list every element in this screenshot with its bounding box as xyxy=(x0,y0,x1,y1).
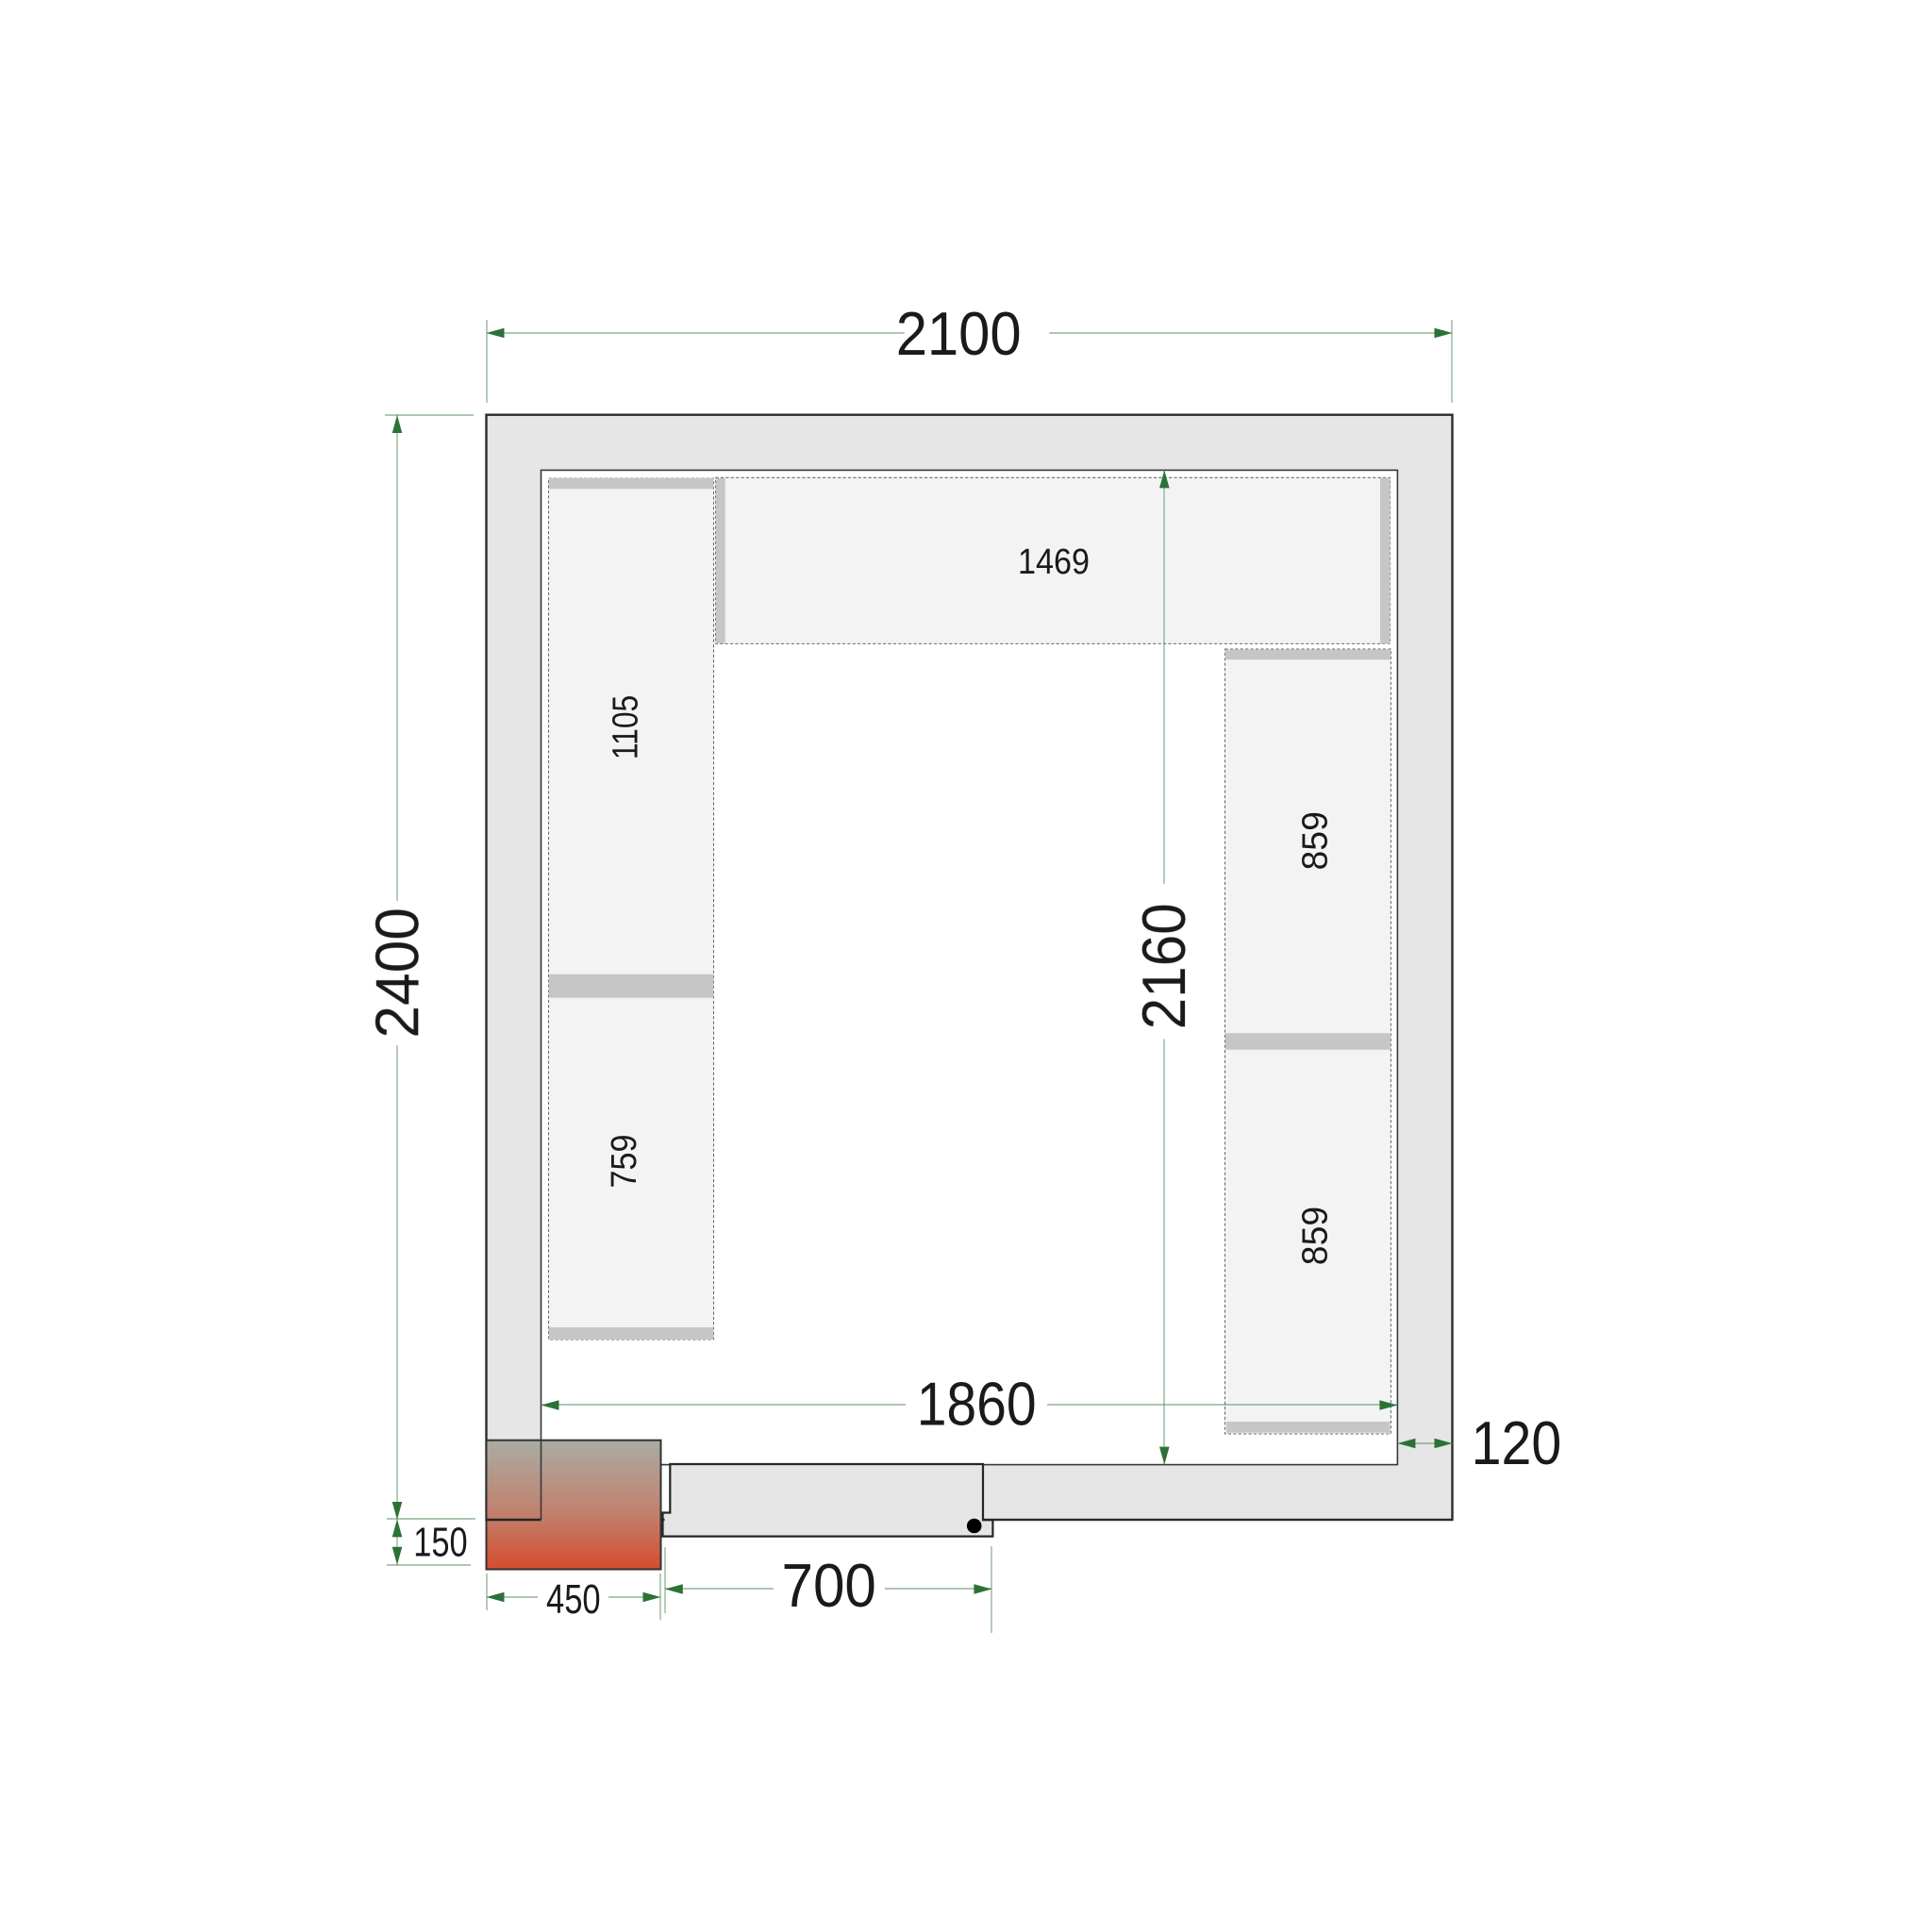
svg-text:120: 120 xyxy=(1472,1408,1562,1477)
svg-text:1105: 1105 xyxy=(606,695,645,759)
svg-text:859: 859 xyxy=(1295,1207,1335,1265)
svg-text:700: 700 xyxy=(782,1551,876,1620)
svg-text:859: 859 xyxy=(1295,811,1335,870)
svg-text:450: 450 xyxy=(546,1576,601,1623)
svg-text:1469: 1469 xyxy=(1018,542,1090,582)
svg-text:150: 150 xyxy=(413,1520,467,1566)
svg-text:1860: 1860 xyxy=(917,1370,1037,1439)
svg-text:759: 759 xyxy=(605,1135,644,1189)
svg-text:2100: 2100 xyxy=(896,299,1022,368)
svg-text:2400: 2400 xyxy=(362,908,431,1039)
svg-text:2160: 2160 xyxy=(1129,903,1198,1029)
